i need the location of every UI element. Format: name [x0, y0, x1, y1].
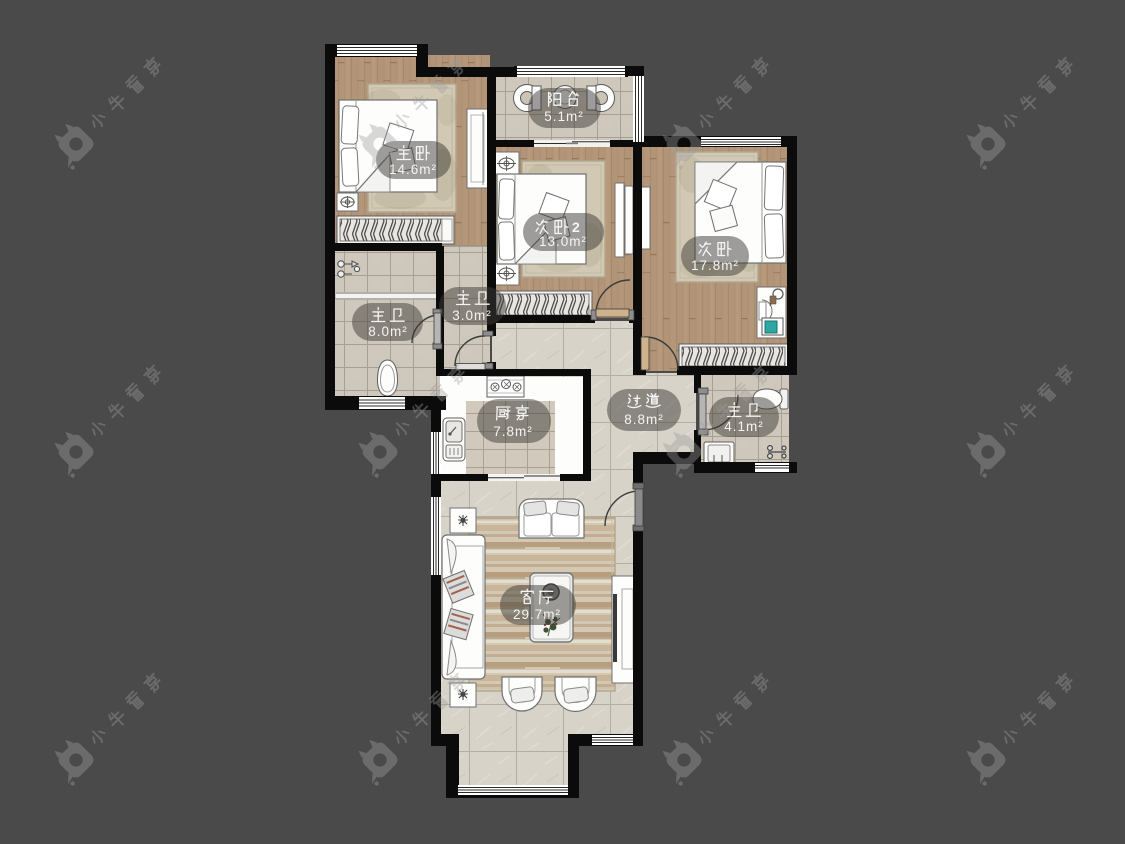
- svg-text:8.8m²: 8.8m²: [624, 412, 664, 427]
- svg-text:17.8m²: 17.8m²: [691, 258, 739, 273]
- svg-text:4.1m²: 4.1m²: [724, 419, 764, 434]
- svg-text:13.0m²: 13.0m²: [539, 234, 587, 249]
- svg-text:2: 2: [572, 219, 580, 235]
- svg-text:8.0m²: 8.0m²: [368, 324, 408, 339]
- svg-text:3.0m²: 3.0m²: [452, 308, 492, 323]
- svg-text:29.7m²: 29.7m²: [513, 607, 561, 622]
- svg-text:14.6m²: 14.6m²: [389, 162, 437, 177]
- svg-text:7.8m²: 7.8m²: [493, 424, 533, 439]
- svg-text:5.1m²: 5.1m²: [544, 109, 584, 124]
